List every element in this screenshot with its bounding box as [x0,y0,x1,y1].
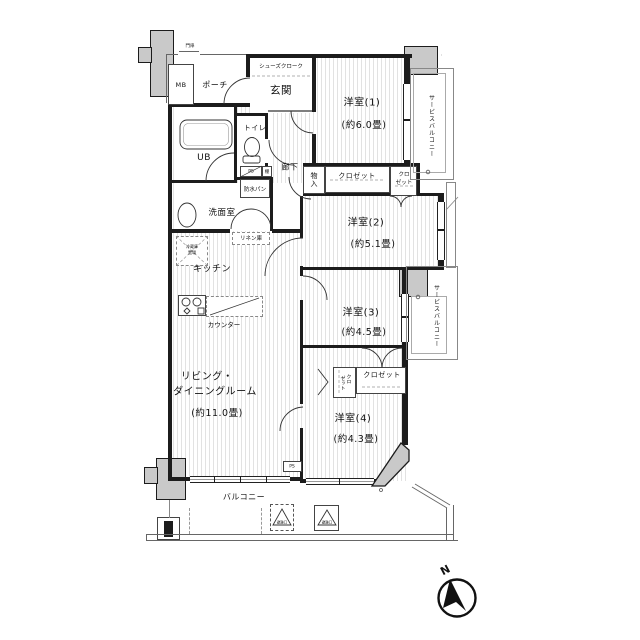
porch-label: ポーチ [202,80,228,91]
balcony-rail-outer-2 [146,540,458,541]
window-w2-divider [438,229,444,231]
ps-lower-label: PS [289,465,295,470]
balcony-rail-left-end [146,534,147,541]
balcony-rail-right-b [453,505,454,541]
shelf-label: 棚 [265,169,270,175]
window-w2 [437,202,445,260]
ub-area [176,107,234,182]
western3-name: 洋室(3) [343,304,380,319]
closet-small-label-2: ゼット [396,178,413,186]
kitchen-label: キッチン [193,262,231,275]
hatch-2-label: 避難口 [322,521,333,526]
fridge-label-2: 置場 [188,250,196,256]
washroom-label: 洗面室 [208,206,235,218]
drain-dot-3 [380,489,383,492]
wall-porch-genkan [246,57,250,77]
counter-box [206,296,263,317]
western4-name: 洋室(4) [335,410,372,425]
western4-size: (約4.3畳) [333,431,378,445]
porch-top-line-a [166,54,178,55]
balcony-rail-outer [146,534,454,535]
balcony-label: バルコニー [223,492,265,503]
living-name-line1: リビング・ [181,368,234,383]
shoes-cloak-label: シューズクローク [259,62,303,70]
side-ledge-rail [446,182,456,268]
waterproof-pan-label: 防水パン [244,185,266,193]
washroom-area [174,183,302,231]
closet-w4-label: クロゼット [363,370,401,380]
western1-size: (約6.0畳) [341,117,386,131]
gate-label: 門扉 [186,43,195,49]
living-size: (約11.0畳) [191,405,243,419]
balcony-chamfer-rail [412,484,450,508]
closet-w1-label: クロゼット [338,171,376,181]
western1-name: 洋室(1) [344,94,381,109]
window-w4-mullion [339,478,340,485]
corridor-label: 廊下 [282,162,299,173]
hatch-1-box [270,504,294,531]
stove-box [178,295,206,316]
wall-ub-right [234,107,237,182]
wall-left [168,103,172,481]
western2-name: 洋室(2) [348,214,385,229]
balcony-divider-2 [261,508,262,534]
floor-plan: N MB 門扉 ポーチ 玄関 シューズクローク 洋室(1) (約6.0畳) サー… [0,0,640,640]
western2-size: (約5.1畳) [350,236,395,250]
closet-w4-side-label-1: クロ [346,374,353,384]
linen-label: リネン庫 [240,234,262,242]
wall-ld-right-c [300,300,303,404]
storage-monoire-label: 物入 [309,172,319,188]
wall-washroom-bottom-a [168,229,230,233]
living-name-line2: ダイニングルーム [173,383,257,398]
service-balcony-2-inner [411,296,447,354]
counter-label: カウンター [208,319,241,329]
pillar-top-left-arm [138,47,152,63]
window-living-mullion-1 [214,476,215,483]
closet-small-label-1: クロ [398,170,409,178]
wall-ub-bottom [168,180,237,183]
pillar-bottom-left-arm [144,467,158,484]
western3-size: (約4.5畳) [341,324,386,338]
toilet-label: トイレ [244,123,267,133]
wall-top [246,54,412,58]
wall-genkan-w1-upper [312,54,316,112]
pillar-drain-link [169,500,170,518]
hatch-1-label: 避難口 [277,521,288,526]
window-w4-rail [306,481,374,482]
porch-left-line [166,54,167,103]
window-living-mullion-3 [266,476,267,483]
compass: N [438,562,475,616]
ps-upper-label: PS [248,170,254,175]
compass-circle [439,580,476,617]
gate-line [179,51,199,52]
closet-w4-side-label-2: ゼット [340,376,347,391]
window-living-mullion-2 [240,476,241,483]
service-balcony-1-label: サービスバルコニー [427,95,436,158]
service-balcony-2-label: サービスバルコニー [432,285,441,348]
wall-genkan-w1-lower [312,134,316,166]
wall-ld-right-a [300,196,303,238]
outside-right-area [408,358,448,484]
ub-label: UB [197,153,211,163]
wall-toilet-top [237,113,268,116]
hatch-2-box [314,505,339,531]
compass-arrow-icon [443,579,466,611]
wall-washroom-right [270,177,273,231]
balcony-rail-right-a [446,508,447,541]
wall-w4-right [402,348,408,445]
porch-top-line-b [200,54,246,55]
wall-w3-w4 [300,345,408,348]
wall-washroom-bottom-b [272,229,303,233]
mb-label: MB [175,81,186,89]
genkan-label: 玄関 [270,83,292,98]
balcony-divider-1 [189,508,190,534]
compass-north-label: N [438,562,452,578]
